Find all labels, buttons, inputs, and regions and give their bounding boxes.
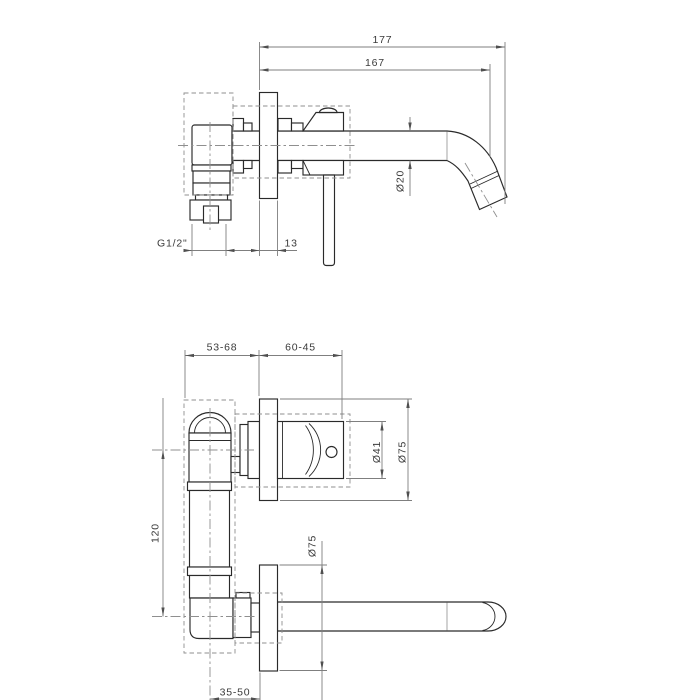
dim-label-d41: Ø41 — [371, 441, 383, 463]
technical-drawing-sheet: 177 167 Ø20 G1/2" 13 — [0, 0, 700, 700]
dimension-line — [185, 350, 259, 398]
dim-label-13: 13 — [285, 238, 298, 250]
dim-label-177: 177 — [373, 34, 393, 46]
dim-label-d75-upper: Ø75 — [397, 441, 409, 463]
dim-label-d75-lower: Ø75 — [307, 535, 319, 557]
pipe-coupling-upper — [188, 482, 232, 491]
dim-label-120: 120 — [150, 523, 162, 543]
cartridge-connector-1 — [231, 457, 240, 473]
valve-band-1 — [192, 165, 231, 171]
dim-label-60-45: 60-45 — [285, 342, 316, 354]
cap-dome-bump — [320, 108, 338, 113]
dim-label-53-68: 53-68 — [207, 342, 238, 354]
front-view-dimensions: 53-68 60-45 Ø41 Ø75 120 — [150, 342, 413, 700]
barrel-step — [244, 161, 253, 169]
barrel-step — [233, 161, 244, 174]
side-view: 177 167 Ø20 G1/2" 13 — [157, 34, 507, 266]
lower-wall-plate-front — [260, 565, 278, 671]
spout-curve-side — [447, 131, 507, 210]
pipe-coupling-lower — [188, 567, 232, 576]
barrel-step — [278, 161, 292, 174]
mixer-installation-diagram: 177 167 Ø20 G1/2" 13 — [0, 0, 700, 700]
dimension-line — [190, 224, 297, 256]
spout-front — [278, 602, 507, 631]
barrel-step — [233, 119, 244, 132]
inlet-nipple — [204, 206, 219, 223]
side-view-parts — [190, 93, 507, 266]
valve-band-4 — [196, 195, 228, 200]
front-view: 53-68 60-45 Ø41 Ø75 120 — [150, 342, 507, 700]
handle-lever-side — [324, 175, 335, 266]
riser-pipe-lower — [190, 576, 230, 599]
dim-label-thread: G1/2" — [157, 238, 188, 250]
riser-pipe-upper — [190, 491, 230, 568]
barrel-step — [292, 161, 304, 169]
dim-inlet-thread: G1/2" — [157, 224, 297, 256]
extension-lines — [260, 201, 278, 257]
dim-label-d20: Ø20 — [395, 170, 407, 192]
dim-spout-reach: 167 — [260, 57, 491, 72]
dim-overall-length: 177 — [260, 34, 506, 49]
valve-band-3 — [193, 183, 230, 195]
spout-elbow-front — [190, 598, 233, 639]
barrel-step — [244, 123, 253, 131]
dim-spout-rough-in: 35-50 — [210, 673, 260, 700]
inwall-valve-body-side — [192, 125, 232, 165]
elbow-connector-2 — [251, 603, 260, 632]
dim-label-35-50: 35-50 — [220, 687, 251, 699]
handle-indicator-dot — [326, 447, 337, 458]
cartridge-cap-side — [303, 113, 344, 132]
valve-band-2 — [193, 171, 230, 183]
dim-label-167: 167 — [365, 57, 385, 69]
barrel-step — [278, 119, 292, 132]
dim-axis-distance: 120 — [150, 398, 165, 617]
dim-rough-in-left: 53-68 — [185, 342, 259, 399]
dim-handle-diameter: Ø41 — [346, 422, 386, 479]
barrel-step — [292, 123, 304, 131]
dim-plate-thickness: 13 — [251, 201, 298, 257]
elbow-connector-1 — [233, 598, 251, 638]
